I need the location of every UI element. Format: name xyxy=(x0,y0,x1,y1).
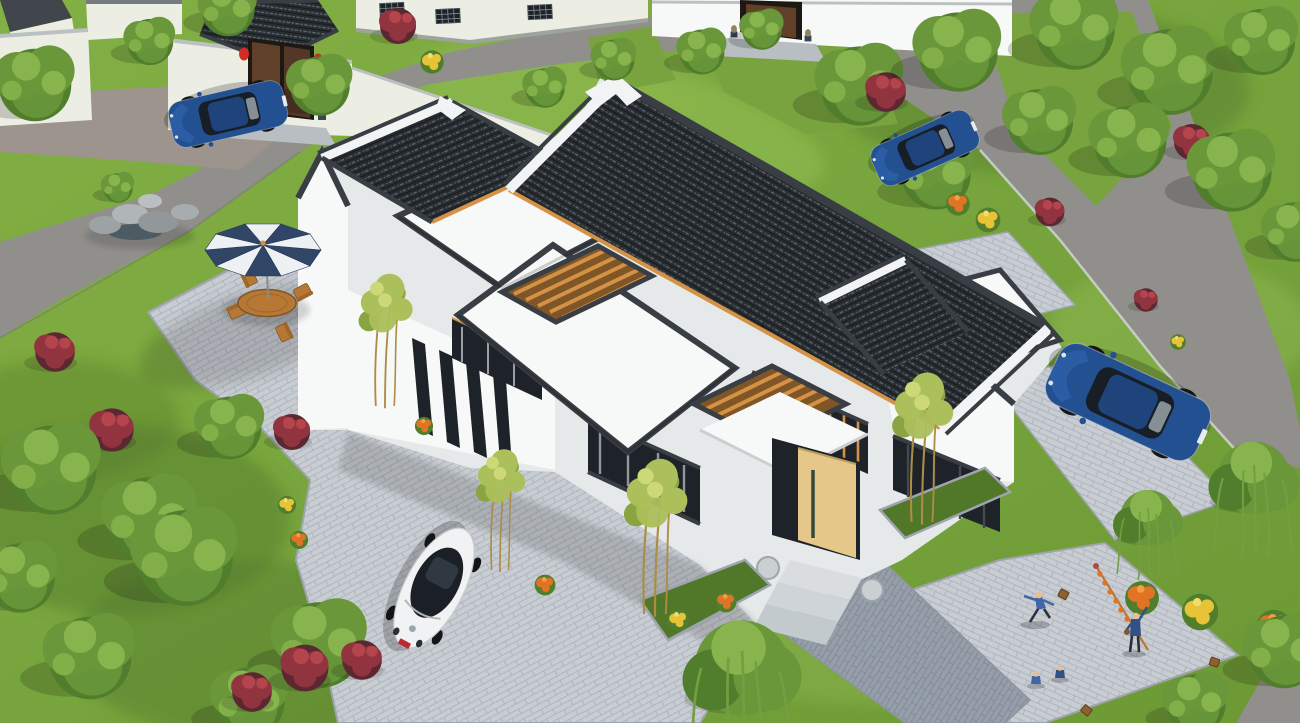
rendered-scene: Aerial rendering of a modern Chinese cou… xyxy=(0,0,1300,723)
light-overlay xyxy=(0,0,1300,723)
courtyard-house-rendering: Aerial rendering of a modern Chinese cou… xyxy=(0,0,1300,723)
